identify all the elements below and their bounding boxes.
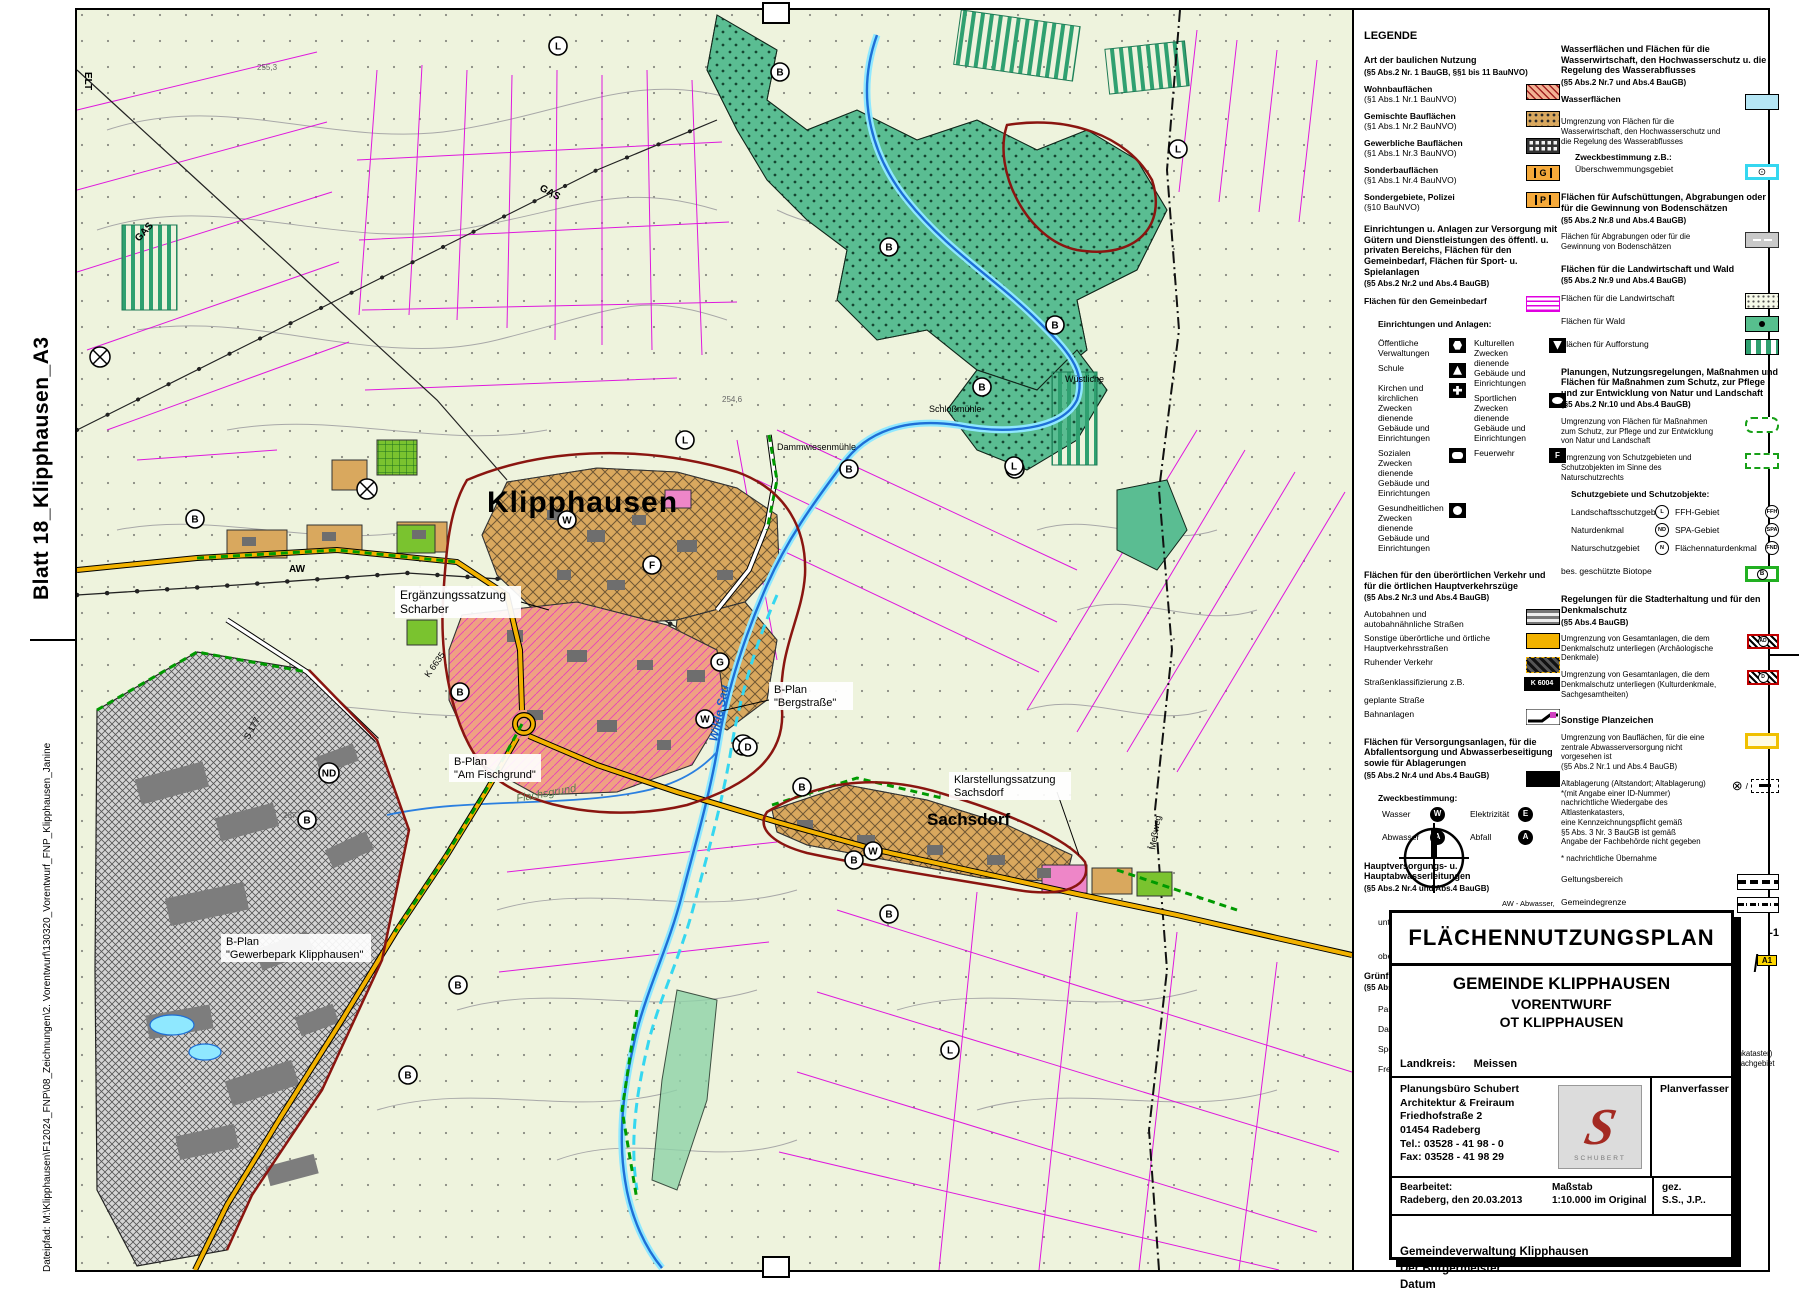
svg-text:B: B <box>303 816 310 827</box>
svg-text:B: B <box>845 465 852 476</box>
svg-text:Sachsdorf: Sachsdorf <box>954 787 1004 799</box>
svg-text:W: W <box>868 847 878 858</box>
map-marker-b: B <box>840 460 858 478</box>
legend-item-altablagerung: Altablagerung (Altstandort; Altablagerun… <box>1561 779 1779 847</box>
map-marker-b: B <box>1046 316 1064 334</box>
legend-item-sondergebiet-polizei: Sondergebiete, Polizei(§10 BauNVO) P <box>1364 192 1560 212</box>
annotation-bplan-fischgrund: B-Plan "Am Fischgrund" <box>449 754 541 782</box>
legend-item-biotope: bes. geschützte Biotope B <box>1561 566 1779 582</box>
swatch-versorgungsflaeche <box>1526 771 1560 787</box>
swatch-gewerbliche-bauflaechen <box>1526 138 1560 154</box>
legend-section-aufschuettungen-title: Flächen für Aufschüttungen, Abgrabungen … <box>1561 192 1779 213</box>
legend-item-bahnanlagen: Bahnanlagen <box>1364 709 1560 725</box>
north-arrow <box>1399 823 1469 893</box>
map-marker-w: W <box>864 842 882 860</box>
gez-cell: gez.S.S., J.P.. <box>1652 1178 1731 1214</box>
svg-text:"Gewerbepark Klipphausen": "Gewerbepark Klipphausen" <box>226 949 364 961</box>
swatch-ohne-abwasser <box>1745 733 1779 749</box>
legend-section-landwirtschaft-title: Flächen für die Landwirtschaft und Wald <box>1561 264 1779 275</box>
fnd-icon: FND <box>1765 541 1779 555</box>
abfall-icon: A <box>1518 830 1533 845</box>
map-marker-f: F <box>643 556 661 574</box>
legend-title: LEGENDE <box>1364 30 1560 43</box>
svg-text:B: B <box>191 515 198 526</box>
edge-tick-left <box>30 639 75 641</box>
plan-sheet: BBBBBBBBBBBBBBLLLLLWWWGNDDF Klipphausen … <box>75 8 1770 1272</box>
legend-item-naturdenkmal: NaturdenkmalND <box>1571 523 1675 537</box>
swatch-denkmal-d: D <box>1747 670 1779 685</box>
map-marker-b: B <box>451 683 469 701</box>
ortsteil-line: OT KLIPPHAUSEN <box>1392 1014 1731 1030</box>
svg-text:B: B <box>404 1071 411 1082</box>
map-marker-nd: ND <box>319 763 339 783</box>
svg-text:B: B <box>776 68 783 79</box>
schutzgebiete-grid: LandschaftsschutzgebietL NaturdenkmalND … <box>1571 501 1779 559</box>
wasser-icon: W <box>1430 807 1445 822</box>
svg-text:B: B <box>885 910 892 921</box>
swatch-gemischte-bauflaechen <box>1526 111 1560 127</box>
aenderung-flag-icon: A1 <box>1753 954 1779 972</box>
legend-item-wald: Flächen für Wald <box>1561 316 1779 332</box>
legend-item-abgrabungen: Flächen für Abgrabungen oder für die Gew… <box>1561 232 1779 251</box>
signature-block: Gemeindeverwaltung KlipphausenDer Bürger… <box>1392 1216 1731 1294</box>
svg-text:G: G <box>716 658 724 669</box>
legend-item-hauptverkehr: Sonstige überörtliche und örtliche Haupt… <box>1364 633 1560 653</box>
legend-item-spa: SPA-GebietSPA <box>1675 523 1785 537</box>
legend-item-gewerblich: Gewerbliche Bauflächen(§1 Abs.1 Nr.3 Bau… <box>1364 138 1560 158</box>
legend-section-gemeinbedarf-title: Einrichtungen u. Anlagen zur Versorgung … <box>1364 224 1560 277</box>
mill-label-dammwiesenmuehle: Dammwiesenmühle <box>777 442 856 452</box>
svg-text:Scharber: Scharber <box>400 602 449 616</box>
legend-item-gesundheit: Gesundheitlichen Zwecken dienende Gebäud… <box>1378 503 1474 553</box>
elevation-254: 254,6 <box>722 395 743 404</box>
sheet-name-vertical: Blatt 18_Klipphausen_A3 <box>30 336 54 600</box>
map-marker-d: D <box>739 738 757 756</box>
title-block: FLÄCHENNUTZUNGSPLAN GEMEINDE KLIPPHAUSEN… <box>1389 910 1734 1260</box>
legend-item-natur-massnahmen: Umgrenzung von Flächen für Maßnahmen zum… <box>1561 417 1779 446</box>
swatch-aufforstung <box>1745 339 1779 355</box>
elevation-287: 287 <box>283 811 297 820</box>
spa-icon: SPA <box>1765 523 1779 537</box>
svg-text:ND: ND <box>322 769 336 780</box>
swatch-schutzgebiete <box>1745 453 1779 469</box>
swatch-abgrabungen <box>1745 232 1779 248</box>
bearbeitet-cell: Bearbeitet:Radeberg, den 20.03.2013 <box>1392 1178 1550 1214</box>
svg-text:B: B <box>798 783 805 794</box>
map-marker-b: B <box>771 63 789 81</box>
map-marker-b: B <box>399 1066 417 1084</box>
office-logo: S SCHUBERT <box>1550 1078 1650 1176</box>
map-marker-l: L <box>549 37 567 55</box>
village-label: Sachsdorf <box>927 810 1010 829</box>
utility-label-elt: ELT <box>82 72 93 90</box>
svg-text:B-Plan: B-Plan <box>454 756 487 768</box>
map-marker-g: G <box>711 653 729 671</box>
legend-item-kirche: Kirchen und kirchlichen Zwecken dienende… <box>1378 383 1474 443</box>
map-canvas: BBBBBBBBBBBBBBLLLLLWWWGNDDF Klipphausen … <box>77 10 1352 1270</box>
legend-item-geplante-strasse: geplante Straße <box>1364 695 1560 705</box>
legend-item-gemischt: Gemischte Bauflächen(§1 Abs.1 Nr.2 BauNV… <box>1364 111 1560 131</box>
vorentwurf-line: VORENTWURF <box>1392 996 1731 1012</box>
naturdenkmal-icon: ND <box>1655 523 1669 537</box>
legend-item-aufforstung: Flächen für Aufforstung <box>1561 339 1779 355</box>
file-path-vertical: Dateipfad: M:\Klipphausen\F12024_FNP\08_… <box>42 743 53 1272</box>
legend-item-wasser-zweck: WasserW <box>1382 807 1470 822</box>
legend-item-kultur: Kulturellen Zwecken dienende Gebäude und… <box>1474 338 1574 388</box>
legend-item-lsg: LandschaftsschutzgebietL <box>1571 505 1675 519</box>
swatch-wohnbauflaechen <box>1526 84 1560 100</box>
svg-text:D: D <box>744 743 751 754</box>
bahnanlagen-icon <box>1526 709 1560 725</box>
legend-note-uebernahme: * nachrichtliche Übernahme <box>1561 854 1779 864</box>
svg-text:B: B <box>456 688 463 699</box>
plan-title: FLÄCHENNUTZUNGSPLAN <box>1392 913 1731 966</box>
verwaltung-icon <box>1449 338 1466 353</box>
svg-text:B: B <box>978 383 985 394</box>
map-marker-l: L <box>1005 457 1023 475</box>
map-marker-b: B <box>298 811 316 829</box>
map-marker-l: L <box>941 1041 959 1059</box>
svg-text:L: L <box>1011 462 1017 473</box>
swatch-ruhender-verkehr <box>1526 657 1560 673</box>
legend-item-nsg: NaturschutzgebietN <box>1571 541 1675 555</box>
swatch-gemeinbedarf <box>1526 296 1560 312</box>
svg-text:B-Plan: B-Plan <box>774 684 807 696</box>
meta-row: Bearbeitet:Radeberg, den 20.03.2013 Maßs… <box>1392 1178 1731 1216</box>
legend-item-sozial: Sozialen Zwecken dienende Gebäude und Ei… <box>1378 448 1474 498</box>
legend-item-schutzgebiete-umgrenzung: Umgrenzung von Schutzgebieten und Schutz… <box>1561 453 1779 482</box>
swatch-ueberschwemmungsgebiet: ⊙ <box>1745 164 1779 180</box>
legend-item-strassenklassifizierung: Straßenklassifizierung z.B. K 6004 <box>1364 677 1560 691</box>
legend-section-wasser-title: Wasserflächen und Flächen für die Wasser… <box>1561 44 1779 76</box>
legend-section-natur-title: Planungen, Nutzungsregelungen, Maßnahmen… <box>1561 367 1779 399</box>
gesundheit-icon <box>1449 503 1466 518</box>
legend-item-sport: Sportlichen Zwecken dienende Gebäude und… <box>1474 393 1574 443</box>
legend-item-fnd: FlächennaturdenkmalFND <box>1675 541 1785 555</box>
elektrizitaet-icon: E <box>1518 807 1533 822</box>
kirche-icon <box>1449 383 1466 398</box>
swatch-wald <box>1745 316 1779 332</box>
swatch-autobahn <box>1526 609 1560 625</box>
svg-text:L: L <box>947 1046 953 1057</box>
legend-item-sonderbau: Sonderbauflächen(§1 Abs.1 Nr.4 BauNVO) G <box>1364 165 1560 185</box>
elevation-255: 255,3 <box>257 63 278 72</box>
zweckbestimmung-heading: Zweckbestimmung: <box>1378 793 1560 803</box>
utility-label-aw: AW <box>289 564 306 575</box>
legend-item-verwaltung: Öffentliche Verwaltungen <box>1378 338 1474 358</box>
map-area[interactable]: BBBBBBBBBBBBBBLLLLLWWWGNDDF Klipphausen … <box>77 10 1354 1270</box>
map-marker-l: L <box>1169 140 1187 158</box>
legend-item-geltungsbereich: Geltungsbereich <box>1561 874 1779 890</box>
map-marker-l: L <box>676 431 694 449</box>
map-marker-b: B <box>449 976 467 994</box>
place-label-wuestliche: Wüstliche <box>1065 374 1104 384</box>
svg-text:Klarstellungssatzung: Klarstellungssatzung <box>954 774 1056 786</box>
map-marker-b: B <box>880 905 898 923</box>
legend-item-ruhender-verkehr: Ruhender Verkehr <box>1364 657 1560 673</box>
fold-mark-bottom <box>762 1256 790 1278</box>
legend-item-feuerwehr: FeuerwehrF <box>1474 448 1574 463</box>
legend-item-gemeinbedarf: Flächen für den Gemeinbedarf <box>1364 296 1560 312</box>
svg-text:B-Plan: B-Plan <box>226 936 259 948</box>
planverfasser-cell: Planverfasser <box>1650 1078 1731 1176</box>
gemeindegrenze-icon <box>1737 897 1779 913</box>
legend-item-landwirtschaft: Flächen für die Landwirtschaft <box>1561 293 1779 309</box>
swatch-denkmal-ad: AD <box>1747 634 1779 649</box>
swatch-natur-massnahmen <box>1745 417 1779 433</box>
annotation-bplan-gewerbepark: B-Plan "Gewerbepark Klipphausen" <box>221 934 371 962</box>
legend-section-denkmalschutz-title: Regelungen für die Stadterhaltung und fü… <box>1561 594 1779 615</box>
edge-tick-right <box>1770 654 1799 656</box>
lsg-icon: L <box>1655 505 1669 519</box>
legend-item-wasser-umgrenzung: Umgrenzung von Flächen für die Wasserwir… <box>1561 117 1721 146</box>
swatch-landwirtschaft <box>1745 293 1779 309</box>
legend-pictogram-grid: Öffentliche Verwaltungen Schule Kirchen … <box>1378 333 1560 558</box>
office-row: Planungsbüro SchubertArchitektur & Freir… <box>1392 1078 1731 1178</box>
legend-item-wasserflaechen: Wasserflächen <box>1561 94 1779 110</box>
map-marker-b: B <box>186 510 204 528</box>
gemeinde-line: GEMEINDE KLIPPHAUSEN <box>1392 974 1731 994</box>
landkreis-row: Landkreis:Meissen <box>1400 1058 1535 1070</box>
swatch-sonderbauflaechen: G <box>1526 165 1560 181</box>
svg-text:B: B <box>1051 321 1058 332</box>
schule-icon <box>1449 363 1466 378</box>
sozial-icon <box>1449 448 1466 463</box>
legend-item-denkmal-kultur: Umgrenzung von Gesamtanlagen, die dem De… <box>1561 670 1779 699</box>
svg-text:L: L <box>682 436 688 447</box>
legend-section-sonstige-title: Sonstige Planzeichen <box>1561 715 1779 726</box>
mill-label-schlossmuehle: Schloßmühle <box>929 404 982 414</box>
swatch-hauptverkehrsstrasse <box>1526 633 1560 649</box>
svg-text:B: B <box>850 856 857 867</box>
nummerierung-value: -1 <box>1769 927 1779 940</box>
legend-item-wohnbau: Wohnbauflächen(§1 Abs.1 Nr.1 BauNVO) <box>1364 84 1560 104</box>
svg-text:F: F <box>649 561 655 572</box>
legend-section-versorgung-title: Flächen für Versorgungsanlagen, für die … <box>1364 737 1560 769</box>
town-label: Klipphausen <box>487 486 678 519</box>
office-address: Planungsbüro SchubertArchitektur & Freir… <box>1392 1078 1550 1176</box>
svg-text:L: L <box>1175 145 1181 156</box>
geltungsbereich-icon <box>1737 874 1779 890</box>
massstab-cell: Maßstab1:10.000 im Original <box>1550 1178 1652 1214</box>
legend-einrichtungen-heading: Einrichtungen und Anlagen: <box>1378 319 1560 329</box>
fold-mark-top <box>762 2 790 24</box>
svg-text:"Bergstraße": "Bergstraße" <box>774 697 836 709</box>
map-marker-b: B <box>845 851 863 869</box>
swatch-biotope: B <box>1745 566 1779 582</box>
svg-text:B: B <box>885 243 892 254</box>
swatch-sondergebiet-polizei: P <box>1526 192 1560 208</box>
legend-item-ueberschwemmungsgebiet: Überschwemmungsgebiet ⊙ <box>1561 164 1779 180</box>
swatch-strassenklassifizierung: K 6004 <box>1524 677 1560 691</box>
svg-text:Ergänzungssatzung: Ergänzungssatzung <box>400 588 506 602</box>
map-marker-b: B <box>880 238 898 256</box>
plan-subtitle-block: GEMEINDE KLIPPHAUSEN VORENTWURF OT KLIPP… <box>1392 966 1731 1078</box>
legend-item-ffh: FFH-GebietFFH <box>1675 505 1785 519</box>
legend-item-elektrizitaet: ElektrizitätE <box>1470 807 1558 822</box>
svg-text:B: B <box>454 981 461 992</box>
legend-item-schule: Schule <box>1378 363 1474 378</box>
altablagerung-icon: ⊗/ <box>1732 779 1779 793</box>
ffh-icon: FFH <box>1765 505 1779 519</box>
legend-section-nutzung-title: Art der baulichen Nutzung <box>1364 55 1560 66</box>
legend-section-verkehr-title: Flächen für den überörtlichen Verkehr un… <box>1364 570 1560 591</box>
legend-item-denkmal-archaeologisch: Umgrenzung von Gesamtanlagen, die dem De… <box>1561 634 1779 663</box>
svg-text:L: L <box>555 42 561 53</box>
nsg-icon: N <box>1655 541 1669 555</box>
svg-text:"Am Fischgrund": "Am Fischgrund" <box>454 769 536 781</box>
map-marker-b: B <box>793 778 811 796</box>
legend-item-autobahn: Autobahnen und autobahnähnliche Straßen <box>1364 609 1560 629</box>
swatch-wasserflaechen <box>1745 94 1779 110</box>
map-marker-b: B <box>973 378 991 396</box>
legend-item-abfall: AbfallA <box>1470 830 1558 845</box>
legend-item-ohne-abwasser: Umgrenzung von Bauflächen, für die einez… <box>1561 733 1779 772</box>
